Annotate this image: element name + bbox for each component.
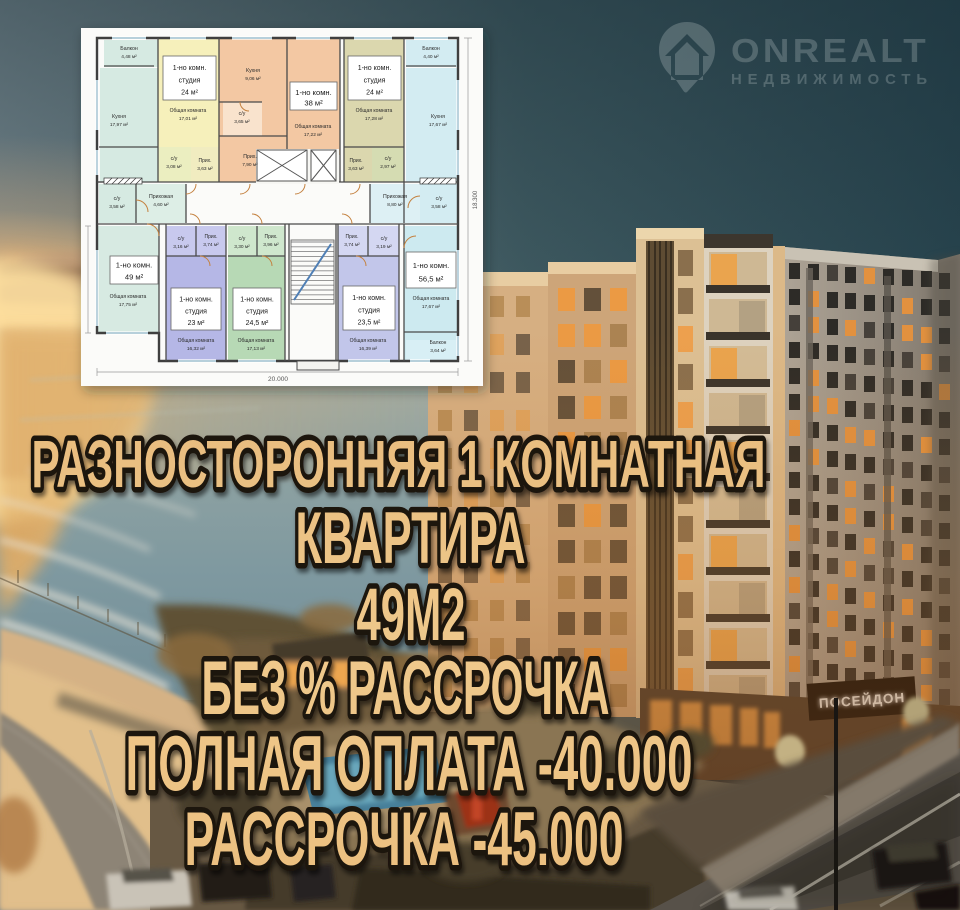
svg-text:17,67 м²: 17,67 м²: [422, 304, 441, 310]
svg-text:Прих.: Прих.: [204, 234, 217, 240]
svg-text:студия: студия: [358, 307, 380, 314]
svg-text:3,58 м²: 3,58 м²: [109, 204, 125, 210]
svg-text:студия: студия: [179, 77, 201, 84]
svg-text:с/у: с/у: [436, 196, 443, 202]
svg-text:38 м²: 38 м²: [304, 99, 323, 108]
svg-text:9,06 м²: 9,06 м²: [245, 76, 261, 82]
svg-text:Общая комната: Общая комната: [178, 338, 215, 344]
svg-text:Общая комната: Общая комната: [170, 108, 207, 114]
svg-text:4,60 м²: 4,60 м²: [153, 202, 169, 208]
svg-text:ONREALT: ONREALT: [731, 32, 929, 69]
svg-text:3,63 м²: 3,63 м²: [197, 166, 213, 172]
svg-text:Кухня: Кухня: [431, 114, 445, 120]
svg-text:23 м²: 23 м²: [188, 320, 206, 327]
svg-text:Прихожая: Прихожая: [149, 194, 173, 200]
svg-text:17,01 м²: 17,01 м²: [179, 116, 198, 122]
svg-text:Прих.: Прих.: [243, 154, 257, 160]
svg-text:с/у: с/у: [239, 111, 246, 117]
svg-text:7,90 м²: 7,90 м²: [242, 162, 258, 168]
svg-text:НЕДВИЖИМОСТЬ: НЕДВИЖИМОСТЬ: [731, 71, 933, 88]
svg-text:17,67 м²: 17,67 м²: [429, 122, 448, 128]
svg-text:17,13 м²: 17,13 м²: [247, 346, 266, 352]
svg-text:17,75 м²: 17,75 м²: [119, 302, 138, 308]
svg-text:с/у: с/у: [171, 156, 178, 162]
svg-text:24,5 м²: 24,5 м²: [246, 320, 269, 327]
svg-text:17,22 м²: 17,22 м²: [304, 132, 323, 138]
svg-text:КВАРТИРА: КВАРТИРА: [296, 498, 526, 579]
svg-text:1-но комн.: 1-но комн.: [116, 261, 152, 270]
svg-text:Общая комната: Общая комната: [295, 124, 332, 130]
svg-text:Кухня: Кухня: [112, 114, 126, 120]
svg-text:Балкон: Балкон: [120, 46, 138, 52]
svg-text:Прих.: Прих.: [349, 158, 362, 164]
svg-text:студия: студия: [185, 308, 207, 315]
svg-text:РАЗНОСТОРОННЯЯ 1 КОМНАТНАЯ: РАЗНОСТОРОННЯЯ 1 КОМНАТНАЯ: [32, 427, 766, 502]
svg-text:20.000: 20.000: [268, 376, 288, 383]
svg-text:1-но комн.: 1-но комн.: [173, 65, 207, 72]
svg-text:2,97 м²: 2,97 м²: [380, 164, 396, 170]
svg-text:Балкон: Балкон: [430, 340, 447, 346]
svg-text:3,19 м²: 3,19 м²: [376, 244, 392, 250]
svg-text:1-но комн.: 1-но комн.: [179, 297, 213, 304]
svg-text:Общая комната: Общая комната: [238, 338, 275, 344]
svg-text:с/у: с/у: [239, 236, 246, 242]
svg-text:студия: студия: [246, 308, 268, 315]
svg-text:56,5 м²: 56,5 м²: [419, 275, 444, 284]
svg-text:с/у: с/у: [385, 156, 392, 162]
svg-text:Общая комната: Общая комната: [110, 294, 147, 300]
svg-text:3,16 м²: 3,16 м²: [173, 244, 189, 250]
svg-text:Общая комната: Общая комната: [413, 296, 450, 302]
svg-text:1-но комн.: 1-но комн.: [240, 297, 274, 304]
svg-text:1-но комн.: 1-но комн.: [352, 295, 386, 302]
svg-text:РАССРОЧКА -45.000: РАССРОЧКА -45.000: [185, 797, 624, 882]
svg-text:1-но комн.: 1-но комн.: [295, 88, 331, 97]
svg-text:Кухня: Кухня: [246, 68, 260, 74]
svg-text:17,28 м²: 17,28 м²: [365, 116, 384, 122]
svg-text:3,74 м²: 3,74 м²: [203, 242, 219, 248]
svg-text:18.300: 18.300: [473, 190, 479, 209]
svg-text:1-но комн.: 1-но комн.: [413, 261, 449, 270]
svg-text:1-но комн.: 1-но комн.: [358, 65, 392, 72]
svg-text:Общая комната: Общая комната: [356, 108, 393, 114]
svg-text:17,97 м²: 17,97 м²: [110, 122, 129, 128]
svg-text:3,63 м²: 3,63 м²: [348, 166, 364, 172]
svg-text:24 м²: 24 м²: [181, 90, 199, 97]
svg-text:3,30 м²: 3,30 м²: [234, 244, 250, 250]
svg-text:49 м²: 49 м²: [125, 273, 144, 282]
svg-text:студия: студия: [364, 77, 386, 84]
svg-text:49М2: 49М2: [357, 573, 466, 656]
svg-text:с/у: с/у: [381, 236, 388, 242]
svg-text:с/у: с/у: [178, 236, 185, 242]
svg-text:8,80 м²: 8,80 м²: [387, 202, 403, 208]
svg-text:3,64 м²: 3,64 м²: [430, 348, 446, 354]
svg-text:16,39 м²: 16,39 м²: [359, 346, 378, 352]
svg-text:3,08 м²: 3,08 м²: [166, 164, 182, 170]
svg-text:16,32 м²: 16,32 м²: [187, 346, 206, 352]
svg-text:Прих.: Прих.: [198, 158, 211, 164]
svg-text:4,48 м²: 4,48 м²: [121, 54, 137, 60]
svg-text:3,58 м²: 3,58 м²: [431, 204, 447, 210]
svg-text:Балкон: Балкон: [422, 46, 440, 52]
svg-text:4,40 м²: 4,40 м²: [423, 54, 439, 60]
svg-text:24 м²: 24 м²: [366, 90, 384, 97]
svg-text:Общая комната: Общая комната: [350, 338, 387, 344]
svg-text:Прихожая: Прихожая: [383, 194, 407, 200]
svg-text:с/у: с/у: [114, 196, 121, 202]
svg-text:23,5 м²: 23,5 м²: [358, 320, 381, 327]
svg-text:3,74 м²: 3,74 м²: [344, 242, 360, 248]
svg-text:Прих.: Прих.: [264, 234, 277, 240]
svg-text:3,96 м²: 3,96 м²: [263, 242, 279, 248]
svg-text:3,65 м²: 3,65 м²: [234, 119, 250, 125]
svg-text:Прих.: Прих.: [345, 234, 358, 240]
svg-text:ПОЛНАЯ ОПЛАТА -40.000: ПОЛНАЯ ОПЛАТА -40.000: [126, 719, 693, 807]
